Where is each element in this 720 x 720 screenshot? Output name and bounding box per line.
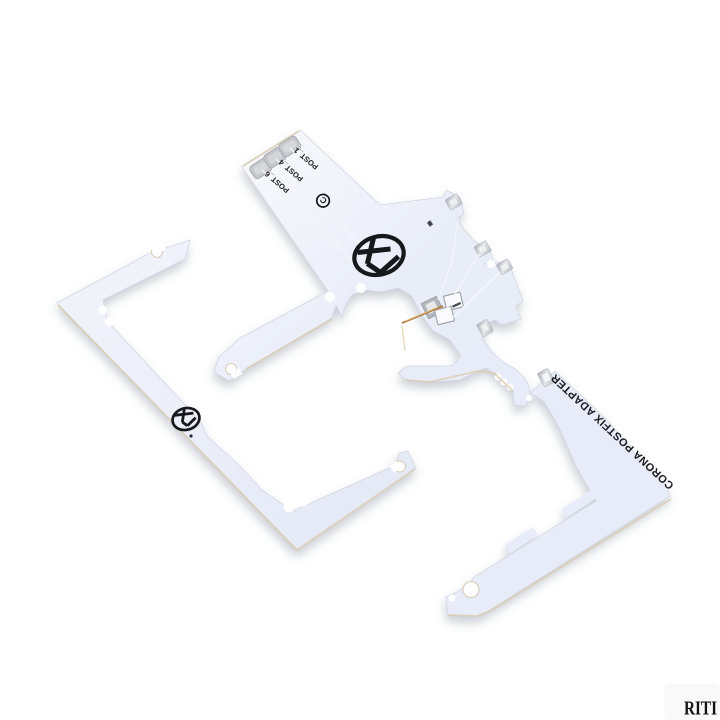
svg-text:RITI: RITI [684, 698, 717, 720]
